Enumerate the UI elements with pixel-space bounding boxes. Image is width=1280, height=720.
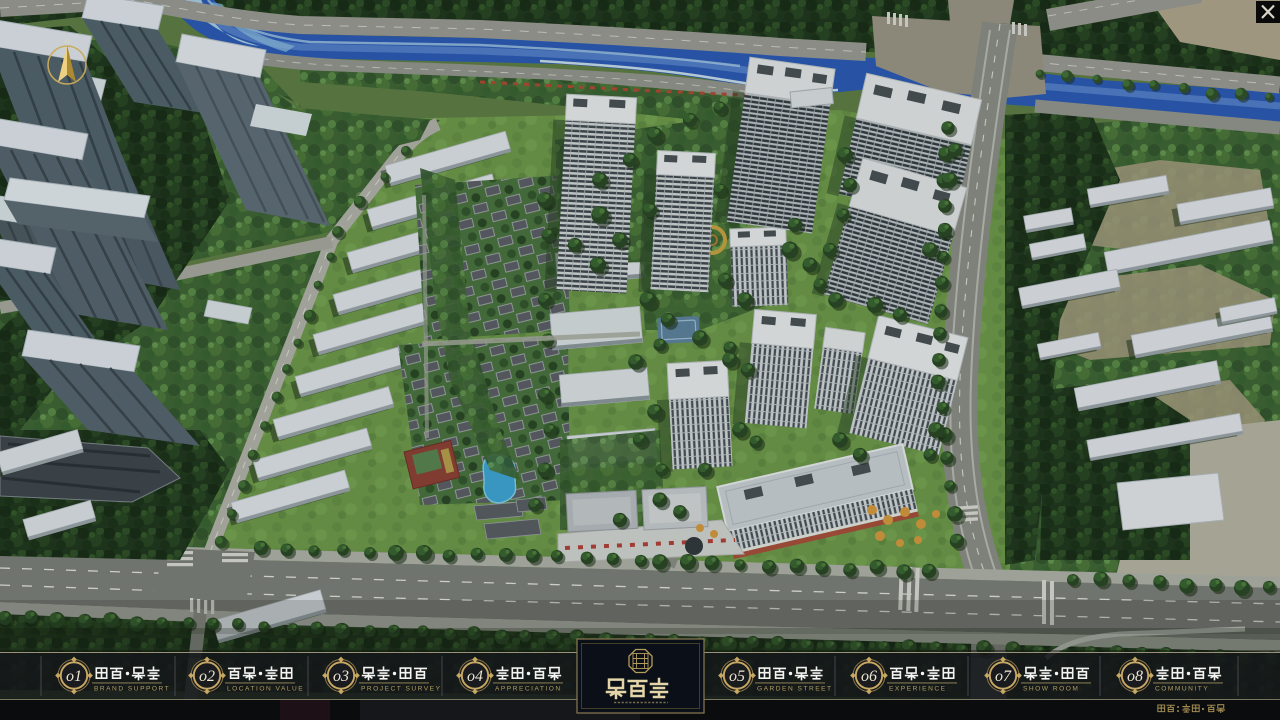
svg-text:o5: o5 [729,668,745,685]
svg-text:EXPERIENCE: EXPERIENCE [889,686,947,693]
svg-text:LOCATION VALUE: LOCATION VALUE [227,686,304,693]
svg-text:PROJECT SURVEY: PROJECT SURVEY [361,686,441,693]
svg-text:o2: o2 [199,668,215,685]
svg-text:o1: o1 [66,668,82,685]
svg-text:o6: o6 [861,668,877,685]
svg-text:o8: o8 [1127,668,1143,685]
svg-text:SHOW ROOM: SHOW ROOM [1023,686,1079,693]
svg-text:o4: o4 [467,668,483,685]
svg-text:BRAND SUPPORT: BRAND SUPPORT [94,686,170,693]
svg-text:o7: o7 [995,668,1012,685]
svg-text:APPRECIATION: APPRECIATION [495,686,562,693]
svg-text:GARDEN STREET: GARDEN STREET [757,686,833,693]
svg-text:o3: o3 [333,668,349,685]
svg-text:COMMUNITY: COMMUNITY [1155,686,1209,693]
